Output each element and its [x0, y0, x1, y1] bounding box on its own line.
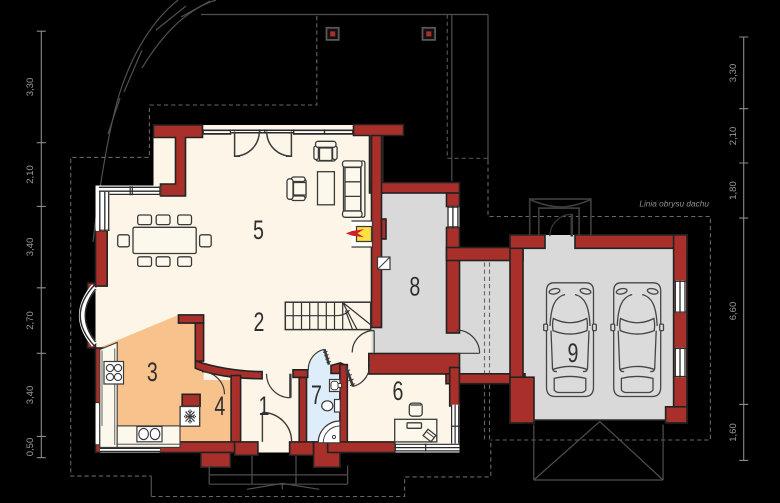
- svg-text:1,80: 1,80: [728, 181, 739, 200]
- svg-text:2,70: 2,70: [25, 311, 36, 330]
- svg-text:2,10: 2,10: [25, 165, 36, 184]
- svg-text:5: 5: [253, 215, 264, 245]
- svg-text:1,60: 1,60: [728, 423, 739, 442]
- svg-text:2: 2: [253, 307, 264, 337]
- svg-text:9: 9: [567, 338, 578, 368]
- svg-text:4: 4: [214, 391, 225, 421]
- svg-text:2,10: 2,10: [728, 127, 739, 146]
- svg-text:3,30: 3,30: [728, 64, 739, 83]
- svg-text:6,60: 6,60: [728, 302, 739, 321]
- svg-text:1: 1: [259, 391, 270, 421]
- svg-text:6: 6: [393, 376, 404, 406]
- svg-text:3,40: 3,40: [25, 238, 36, 257]
- svg-text:0,50: 0,50: [25, 438, 36, 457]
- svg-text:3,30: 3,30: [25, 78, 36, 97]
- svg-text:8: 8: [409, 272, 420, 302]
- svg-text:Linia obrysu dachu: Linia obrysu dachu: [639, 199, 709, 209]
- svg-text:3: 3: [147, 357, 158, 387]
- svg-text:3,40: 3,40: [25, 386, 36, 405]
- svg-text:7: 7: [311, 380, 322, 410]
